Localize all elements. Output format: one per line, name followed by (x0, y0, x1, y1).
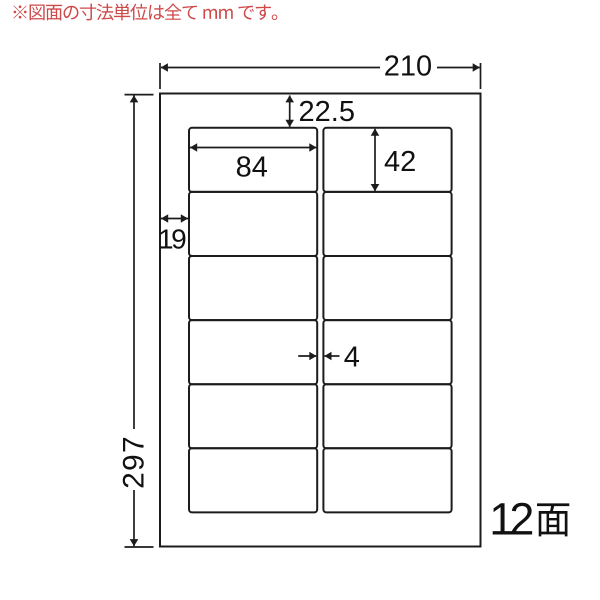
svg-text:4: 4 (344, 341, 360, 373)
svg-text:12: 12 (489, 494, 532, 545)
svg-text:210: 210 (384, 51, 432, 83)
svg-text:42: 42 (384, 146, 416, 178)
svg-text:22.5: 22.5 (299, 96, 355, 128)
svg-text:19: 19 (158, 223, 186, 254)
svg-text:84: 84 (236, 151, 268, 183)
svg-text:297: 297 (118, 435, 151, 489)
